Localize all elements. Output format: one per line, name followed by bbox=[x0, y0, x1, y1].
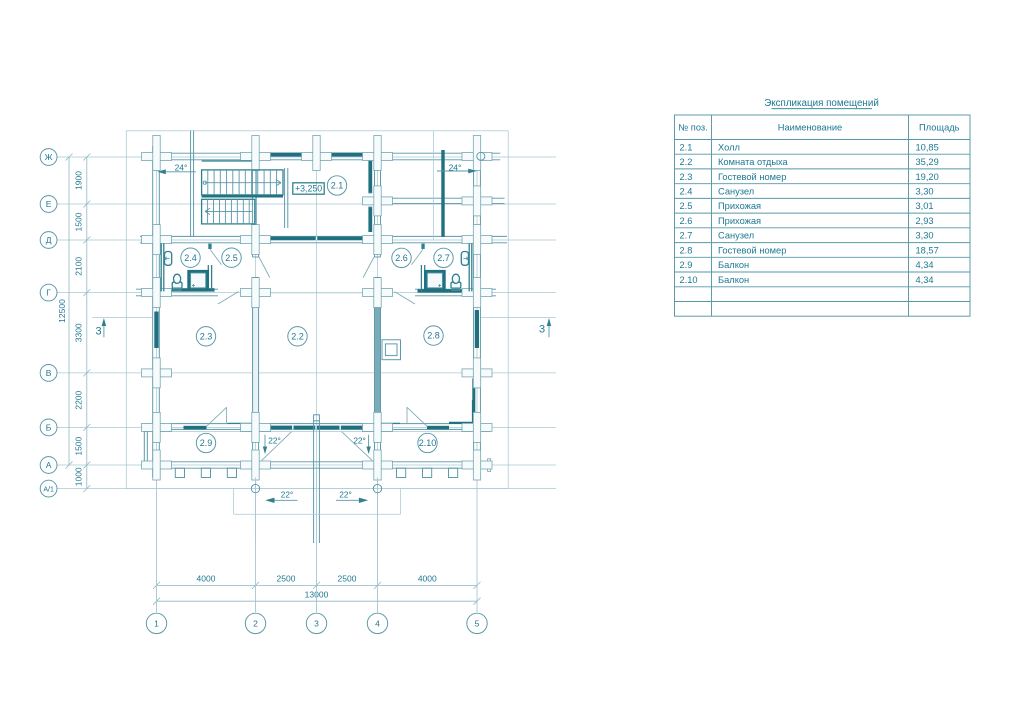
svg-text:А: А bbox=[46, 460, 52, 470]
svg-text:12500: 12500 bbox=[57, 299, 67, 323]
svg-text:4000: 4000 bbox=[418, 574, 437, 584]
svg-text:1900: 1900 bbox=[74, 171, 84, 190]
svg-text:№ поз.: № поз. bbox=[678, 123, 708, 133]
svg-text:2100: 2100 bbox=[74, 257, 84, 276]
svg-text:Д: Д bbox=[46, 235, 52, 245]
svg-text:2.6: 2.6 bbox=[395, 253, 408, 263]
svg-text:2.5: 2.5 bbox=[680, 201, 693, 211]
svg-text:2.3: 2.3 bbox=[200, 331, 213, 341]
svg-text:Санузел: Санузел bbox=[718, 187, 754, 197]
svg-text:2.7: 2.7 bbox=[437, 253, 450, 263]
svg-text:2.1: 2.1 bbox=[331, 181, 344, 191]
svg-text:35,29: 35,29 bbox=[916, 157, 939, 167]
svg-text:2.10: 2.10 bbox=[680, 275, 698, 285]
svg-text:Площадь: Площадь bbox=[919, 123, 960, 133]
svg-text:10,85: 10,85 bbox=[916, 142, 939, 152]
svg-text:2.7: 2.7 bbox=[680, 231, 693, 241]
svg-text:1: 1 bbox=[154, 619, 159, 629]
svg-text:Г: Г bbox=[46, 288, 51, 298]
svg-text:1000: 1000 bbox=[74, 467, 84, 486]
svg-text:22°: 22° bbox=[339, 489, 352, 499]
svg-text:2.8: 2.8 bbox=[427, 331, 440, 341]
svg-text:Е: Е bbox=[46, 199, 52, 209]
svg-text:4: 4 bbox=[375, 619, 380, 629]
svg-text:22°: 22° bbox=[268, 435, 281, 445]
svg-text:24°: 24° bbox=[175, 163, 188, 173]
svg-text:2.5: 2.5 bbox=[225, 253, 238, 263]
svg-text:3300: 3300 bbox=[74, 323, 84, 342]
svg-text:Гостевой номер: Гостевой номер bbox=[718, 245, 786, 255]
svg-text:2.2: 2.2 bbox=[291, 331, 304, 341]
svg-text:В: В bbox=[46, 368, 52, 378]
svg-text:2200: 2200 bbox=[74, 390, 84, 409]
svg-text:3: 3 bbox=[539, 324, 545, 336]
svg-text:Комната отдыха: Комната отдыха bbox=[718, 157, 789, 167]
svg-text:Балкон: Балкон bbox=[718, 260, 749, 270]
svg-text:2.4: 2.4 bbox=[680, 187, 693, 197]
svg-text:Прихожая: Прихожая bbox=[718, 201, 761, 211]
svg-text:18,57: 18,57 bbox=[916, 245, 939, 255]
svg-text:+3,250: +3,250 bbox=[295, 183, 322, 193]
svg-text:Холл: Холл bbox=[718, 142, 740, 152]
svg-text:2.4: 2.4 bbox=[184, 253, 197, 263]
svg-text:5: 5 bbox=[475, 619, 480, 629]
svg-text:Б: Б bbox=[46, 422, 52, 432]
svg-text:А/1: А/1 bbox=[43, 487, 54, 494]
svg-text:2.9: 2.9 bbox=[680, 260, 693, 270]
svg-text:2.8: 2.8 bbox=[680, 245, 693, 255]
svg-text:3: 3 bbox=[95, 326, 101, 338]
svg-text:2.6: 2.6 bbox=[680, 216, 693, 226]
svg-text:2.9: 2.9 bbox=[200, 438, 213, 448]
svg-text:3: 3 bbox=[314, 619, 319, 629]
svg-text:1500: 1500 bbox=[74, 212, 84, 231]
svg-text:Балкон: Балкон bbox=[718, 275, 749, 285]
svg-text:4,34: 4,34 bbox=[916, 275, 934, 285]
svg-text:Санузел: Санузел bbox=[718, 231, 754, 241]
svg-text:2500: 2500 bbox=[338, 574, 357, 584]
svg-text:22°: 22° bbox=[353, 435, 366, 445]
svg-text:Экспликация помещений: Экспликация помещений bbox=[764, 98, 879, 109]
svg-text:Ж: Ж bbox=[45, 152, 53, 162]
svg-text:2: 2 bbox=[253, 619, 258, 629]
svg-text:2.3: 2.3 bbox=[680, 172, 693, 182]
svg-text:Прихожая: Прихожая bbox=[718, 216, 761, 226]
svg-text:2.1: 2.1 bbox=[680, 142, 693, 152]
svg-text:2,93: 2,93 bbox=[916, 216, 934, 226]
svg-text:3,30: 3,30 bbox=[916, 187, 934, 197]
svg-text:1500: 1500 bbox=[74, 436, 84, 455]
svg-text:2500: 2500 bbox=[277, 574, 296, 584]
svg-text:22°: 22° bbox=[281, 489, 294, 499]
svg-text:Гостевой номер: Гостевой номер bbox=[718, 172, 786, 182]
svg-text:4000: 4000 bbox=[197, 574, 216, 584]
svg-text:Наименование: Наименование bbox=[778, 123, 842, 133]
svg-text:19,20: 19,20 bbox=[916, 172, 939, 182]
svg-text:2.2: 2.2 bbox=[680, 157, 693, 167]
svg-text:2.10: 2.10 bbox=[419, 438, 437, 448]
svg-text:3,30: 3,30 bbox=[916, 231, 934, 241]
svg-text:3,01: 3,01 bbox=[916, 201, 934, 211]
svg-text:4,34: 4,34 bbox=[916, 260, 934, 270]
